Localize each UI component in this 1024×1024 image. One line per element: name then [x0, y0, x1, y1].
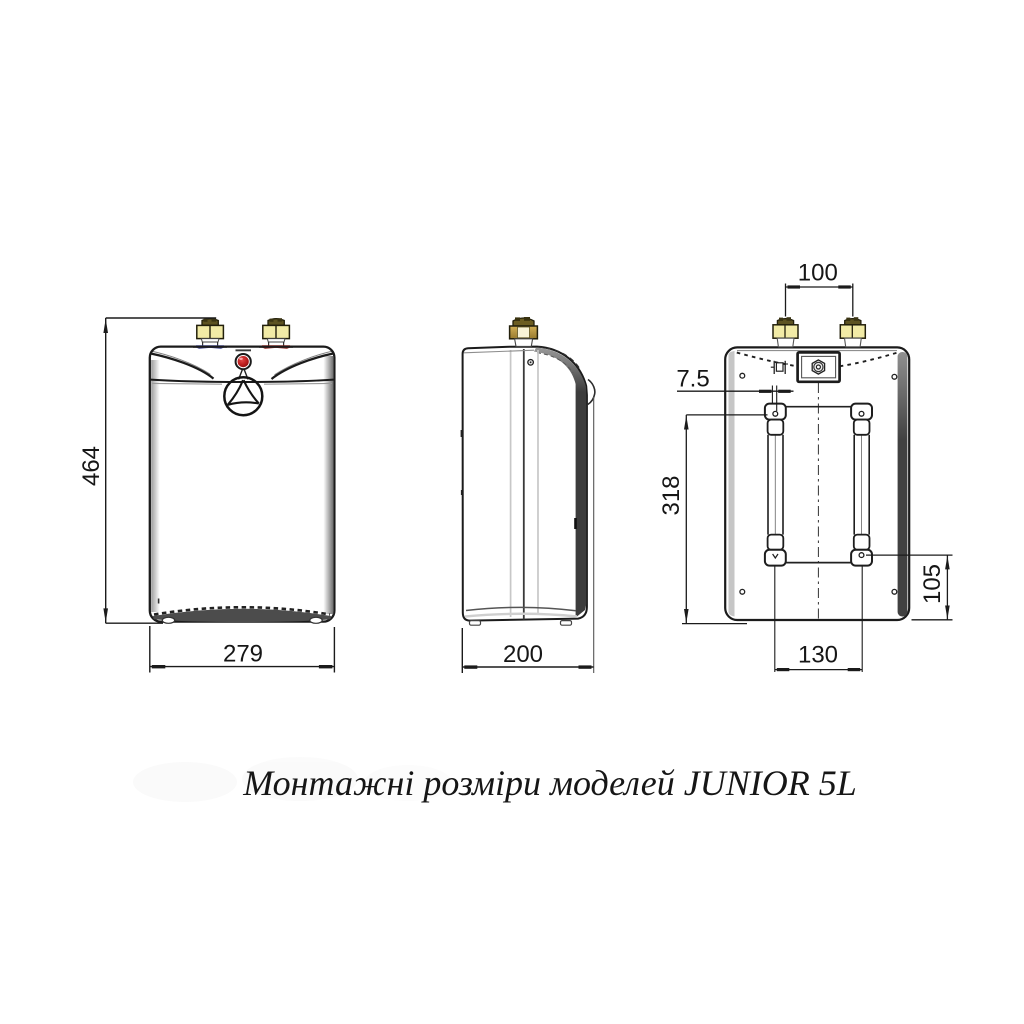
svg-text:7.5: 7.5: [676, 366, 709, 393]
svg-text:105: 105: [919, 564, 946, 604]
svg-text:464: 464: [78, 446, 105, 486]
svg-text:279: 279: [223, 641, 263, 668]
svg-text:Монтажні розміри моделей JUNI: Монтажні розміри моделей JUNIOR 5L: [242, 763, 857, 803]
svg-text:100: 100: [798, 260, 838, 287]
svg-text:318: 318: [658, 475, 685, 515]
svg-text:130: 130: [798, 642, 838, 669]
svg-text:200: 200: [503, 641, 543, 668]
